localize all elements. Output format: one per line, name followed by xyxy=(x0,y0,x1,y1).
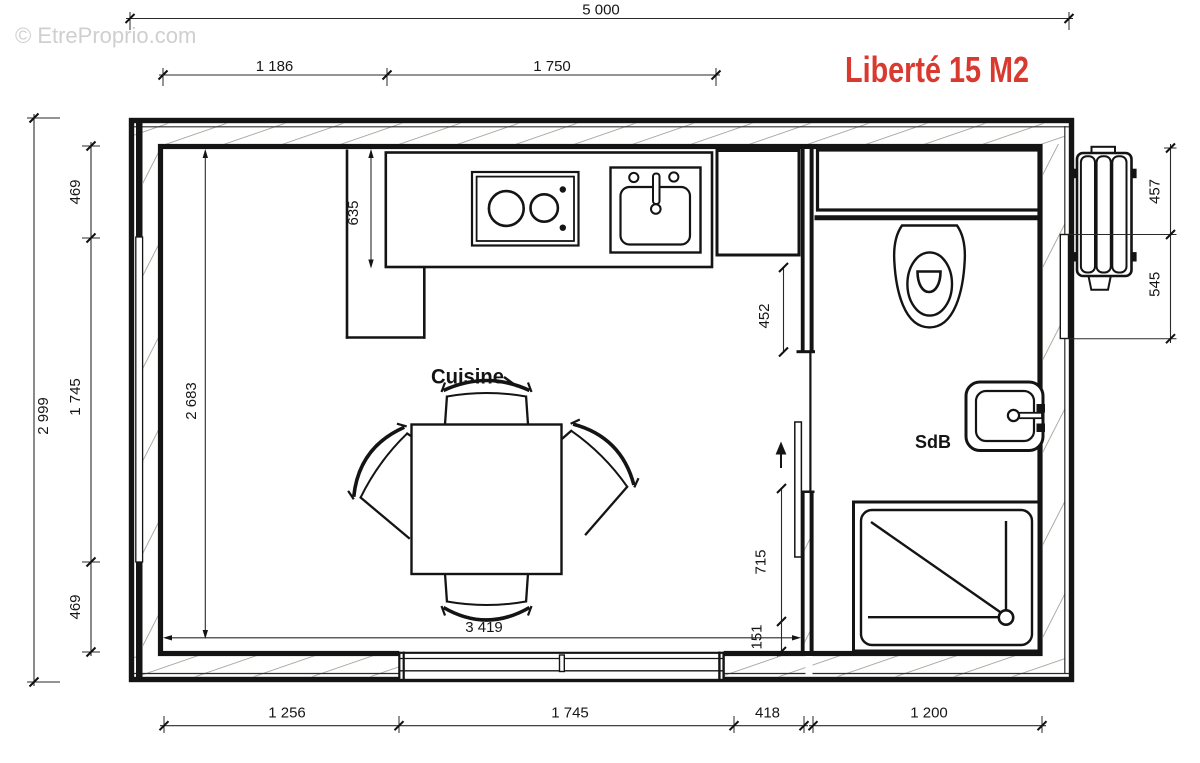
svg-text:3 419: 3 419 xyxy=(465,619,503,636)
svg-text:545: 545 xyxy=(1147,272,1164,297)
svg-text:418: 418 xyxy=(755,705,780,722)
svg-text:1 186: 1 186 xyxy=(256,58,294,75)
svg-text:1 256: 1 256 xyxy=(268,705,306,722)
svg-text:457: 457 xyxy=(1147,179,1164,204)
svg-text:1 750: 1 750 xyxy=(533,58,571,75)
svg-text:5 000: 5 000 xyxy=(582,2,620,19)
svg-text:469: 469 xyxy=(67,179,84,204)
svg-text:2 999: 2 999 xyxy=(35,397,52,435)
svg-text:2 683: 2 683 xyxy=(183,382,200,420)
svg-text:1 745: 1 745 xyxy=(551,705,589,722)
svg-text:© EtreProprio.com: © EtreProprio.com xyxy=(15,23,196,48)
svg-text:635: 635 xyxy=(345,200,362,225)
svg-text:469: 469 xyxy=(67,594,84,619)
svg-text:Cuisine: Cuisine xyxy=(431,366,504,389)
svg-text:715: 715 xyxy=(753,549,770,574)
svg-text:151: 151 xyxy=(749,624,766,649)
svg-text:1 745: 1 745 xyxy=(67,378,84,416)
svg-text:452: 452 xyxy=(756,303,773,328)
svg-text:Liberté 15 M2: Liberté 15 M2 xyxy=(845,49,1029,90)
svg-text:SdB: SdB xyxy=(915,432,951,452)
svg-text:1 200: 1 200 xyxy=(910,705,948,722)
